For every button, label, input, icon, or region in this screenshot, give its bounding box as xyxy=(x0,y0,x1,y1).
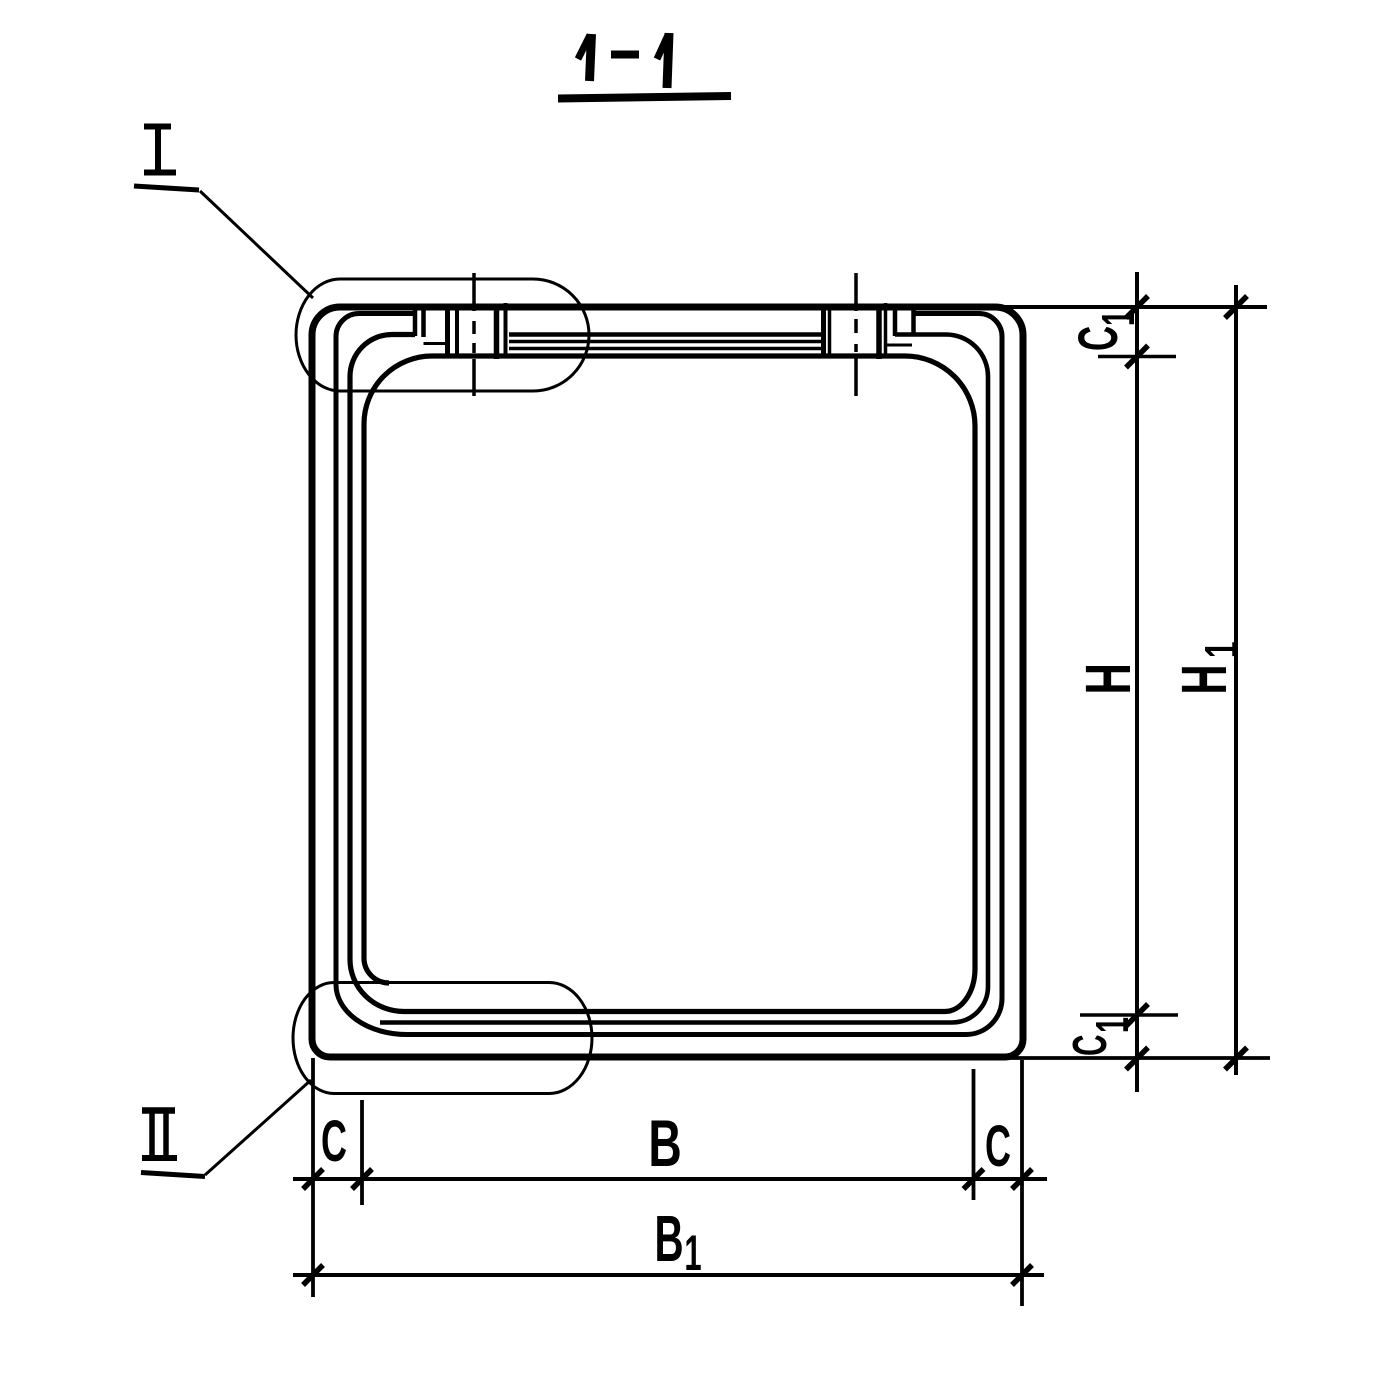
svg-text:C: C xyxy=(1067,326,1130,351)
svg-text:1: 1 xyxy=(1093,310,1145,326)
svg-text:B: B xyxy=(648,1107,681,1181)
svg-text:C: C xyxy=(1064,1035,1117,1056)
svg-text:1: 1 xyxy=(1087,1017,1139,1033)
svg-text:H: H xyxy=(1169,664,1240,694)
svg-text:B: B xyxy=(654,1203,683,1275)
svg-text:C: C xyxy=(321,1109,347,1174)
svg-text:C: C xyxy=(985,1114,1011,1179)
svg-text:1: 1 xyxy=(684,1224,701,1280)
svg-text:H: H xyxy=(1072,663,1145,694)
svg-text:1: 1 xyxy=(1197,641,1248,658)
